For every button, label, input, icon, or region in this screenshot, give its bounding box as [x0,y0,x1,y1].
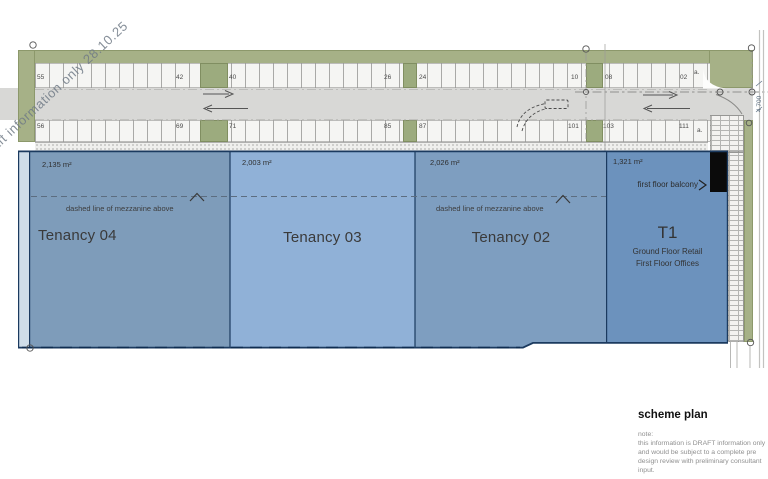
kerb-curve [716,95,742,115]
note-line: design review with preliminary consultan… [638,457,762,466]
balcony-leader-arrow-icon [699,180,706,190]
plan-linework [0,0,768,479]
chevron-up-icon [190,194,204,202]
road-dimension-label: 4 700 [756,96,763,112]
road-direction-arrows [203,91,690,113]
extension-lines [731,342,751,368]
vehicle-turning-path [517,100,568,131]
note-line: input. [638,466,655,475]
stall-front-lines [35,90,708,120]
note-label: note: [638,430,653,439]
scheme-plan-title: scheme plan [638,409,708,421]
kerb-notch [703,69,726,89]
note-line: this information is DRAFT information on… [638,439,765,448]
tenancy-boundaries [18,151,728,348]
scheme-plan-drawing: 5542402624100802a.5669718587101103111a. … [0,0,768,479]
right-edge-lines [760,30,764,368]
note-line: and would be subject to a complete pre [638,448,756,457]
